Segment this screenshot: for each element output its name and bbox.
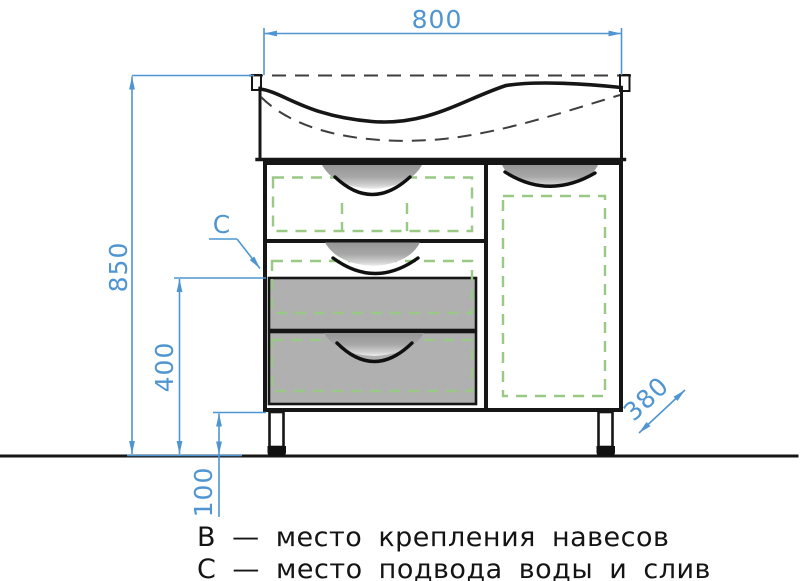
- siphon-zone-outline: [342, 203, 407, 231]
- upper-drawer-front: [273, 165, 472, 231]
- marker-c-leader: C: [209, 210, 260, 269]
- sink-top: [249, 75, 632, 160]
- dimension-drawer-400: 400: [150, 278, 266, 454]
- right-foot: [597, 446, 616, 456]
- dimension-label-380: 380: [618, 371, 675, 427]
- door-lattice-panel: [503, 196, 605, 396]
- drawer-box-1: [269, 278, 476, 330]
- left-foot: [268, 446, 287, 456]
- dimension-label-800: 800: [412, 5, 463, 34]
- legend: В — место крепления навесов С — место по…: [197, 522, 711, 581]
- dimension-width-800: 800: [264, 5, 622, 75]
- lower-drawers: [269, 243, 476, 405]
- dimension-label-100: 100: [189, 467, 218, 518]
- legend-line-c: С — место подвода воды и слив: [197, 554, 711, 581]
- right-leg: [599, 412, 613, 447]
- left-leg: [270, 412, 284, 447]
- sink-front-wave-edge: [260, 83, 621, 122]
- technical-drawing: 800 850 400 100 380 C В — место креплени…: [0, 0, 800, 581]
- legend-line-b: В — место крепления навесов: [197, 522, 669, 553]
- vanity-dimension-drawing: 800 850 400 100 380 C В — место креплени…: [0, 0, 800, 581]
- ground-line: [0, 456, 797, 457]
- dimension-depth-380: 380: [618, 371, 685, 433]
- dimension-label-850: 850: [104, 242, 133, 293]
- legs: [268, 412, 616, 456]
- sink-basin-hidden-edge: [261, 95, 620, 141]
- dimension-label-400: 400: [150, 342, 179, 393]
- marker-c-label: C: [213, 210, 231, 239]
- dimension-leg-100: 100: [189, 413, 266, 518]
- cabinet-door: [502, 165, 605, 396]
